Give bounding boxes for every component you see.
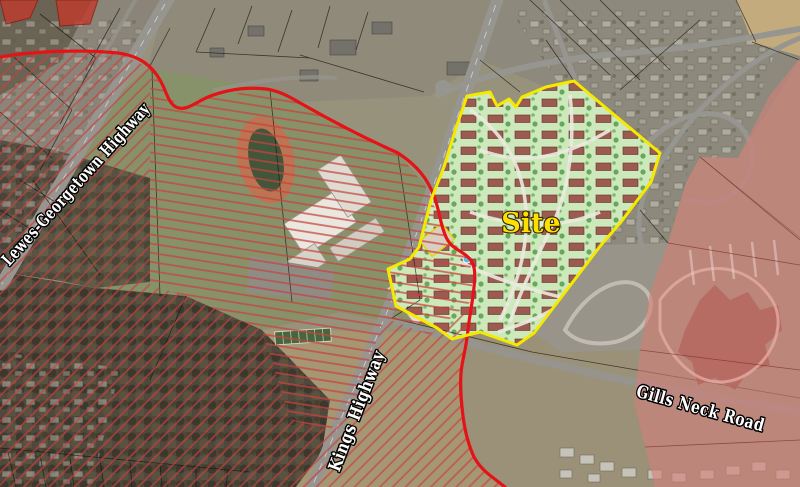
map-canvas: Lewes-Georgetown Highway Kings Highway G… (0, 0, 800, 487)
label-site: Site (501, 208, 560, 239)
aerial-map: Lewes-Georgetown Highway Kings Highway G… (0, 0, 800, 487)
